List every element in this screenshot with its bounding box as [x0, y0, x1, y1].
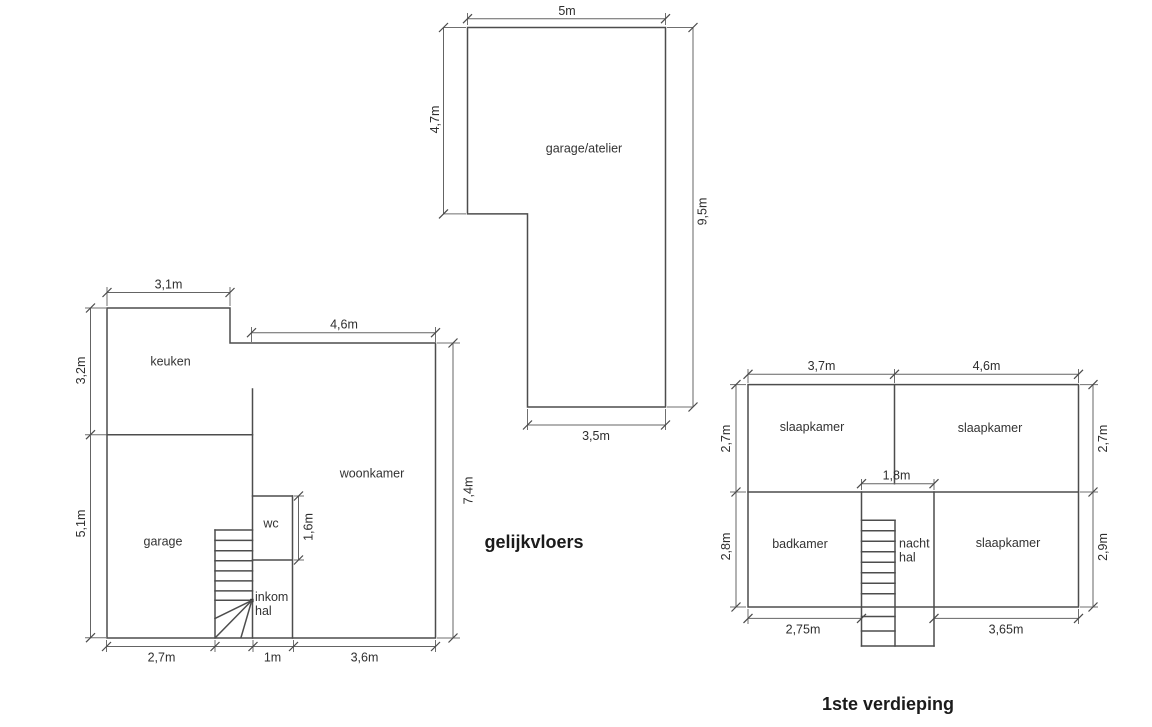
svg-text:nacht: nacht [899, 537, 930, 551]
svg-text:3,1m: 3,1m [155, 278, 183, 292]
svg-text:woonkamer: woonkamer [339, 467, 405, 481]
svg-text:2,75m: 2,75m [786, 623, 821, 637]
svg-text:3,5m: 3,5m [582, 429, 610, 443]
svg-text:inkom: inkom [255, 590, 288, 604]
svg-text:2,9m: 2,9m [1096, 533, 1110, 561]
svg-text:hal: hal [255, 604, 272, 618]
svg-text:3,7m: 3,7m [808, 359, 836, 373]
svg-text:9,5m: 9,5m [696, 198, 710, 226]
svg-text:badkamer: badkamer [772, 537, 828, 551]
svg-text:3,2m: 3,2m [74, 357, 88, 385]
svg-text:5,1m: 5,1m [74, 510, 88, 538]
svg-text:4,6m: 4,6m [330, 318, 358, 332]
svg-text:1,8m: 1,8m [883, 468, 911, 482]
svg-text:wc: wc [262, 517, 278, 531]
svg-text:1m: 1m [264, 651, 281, 665]
svg-text:hal: hal [899, 551, 916, 565]
svg-text:7,4m: 7,4m [462, 477, 476, 505]
svg-text:slaapkamer: slaapkamer [958, 421, 1023, 435]
svg-text:3,6m: 3,6m [351, 651, 379, 665]
svg-text:keuken: keuken [150, 355, 190, 369]
svg-text:2,7m: 2,7m [719, 425, 733, 453]
svg-text:1,6m: 1,6m [302, 513, 316, 541]
svg-text:garage: garage [144, 535, 183, 549]
svg-text:2,8m: 2,8m [719, 533, 733, 561]
svg-text:slaapkamer: slaapkamer [780, 420, 845, 434]
svg-text:garage/atelier: garage/atelier [546, 142, 622, 156]
svg-text:5m: 5m [558, 4, 575, 18]
svg-text:2,7m: 2,7m [148, 651, 176, 665]
svg-text:4,6m: 4,6m [973, 359, 1001, 373]
svg-text:4,7m: 4,7m [428, 106, 442, 134]
svg-text:1ste verdieping: 1ste verdieping [822, 694, 954, 714]
svg-text:2,7m: 2,7m [1096, 425, 1110, 453]
svg-text:slaapkamer: slaapkamer [976, 536, 1041, 550]
svg-text:gelijkvloers: gelijkvloers [484, 532, 583, 552]
svg-text:3,65m: 3,65m [989, 623, 1024, 637]
